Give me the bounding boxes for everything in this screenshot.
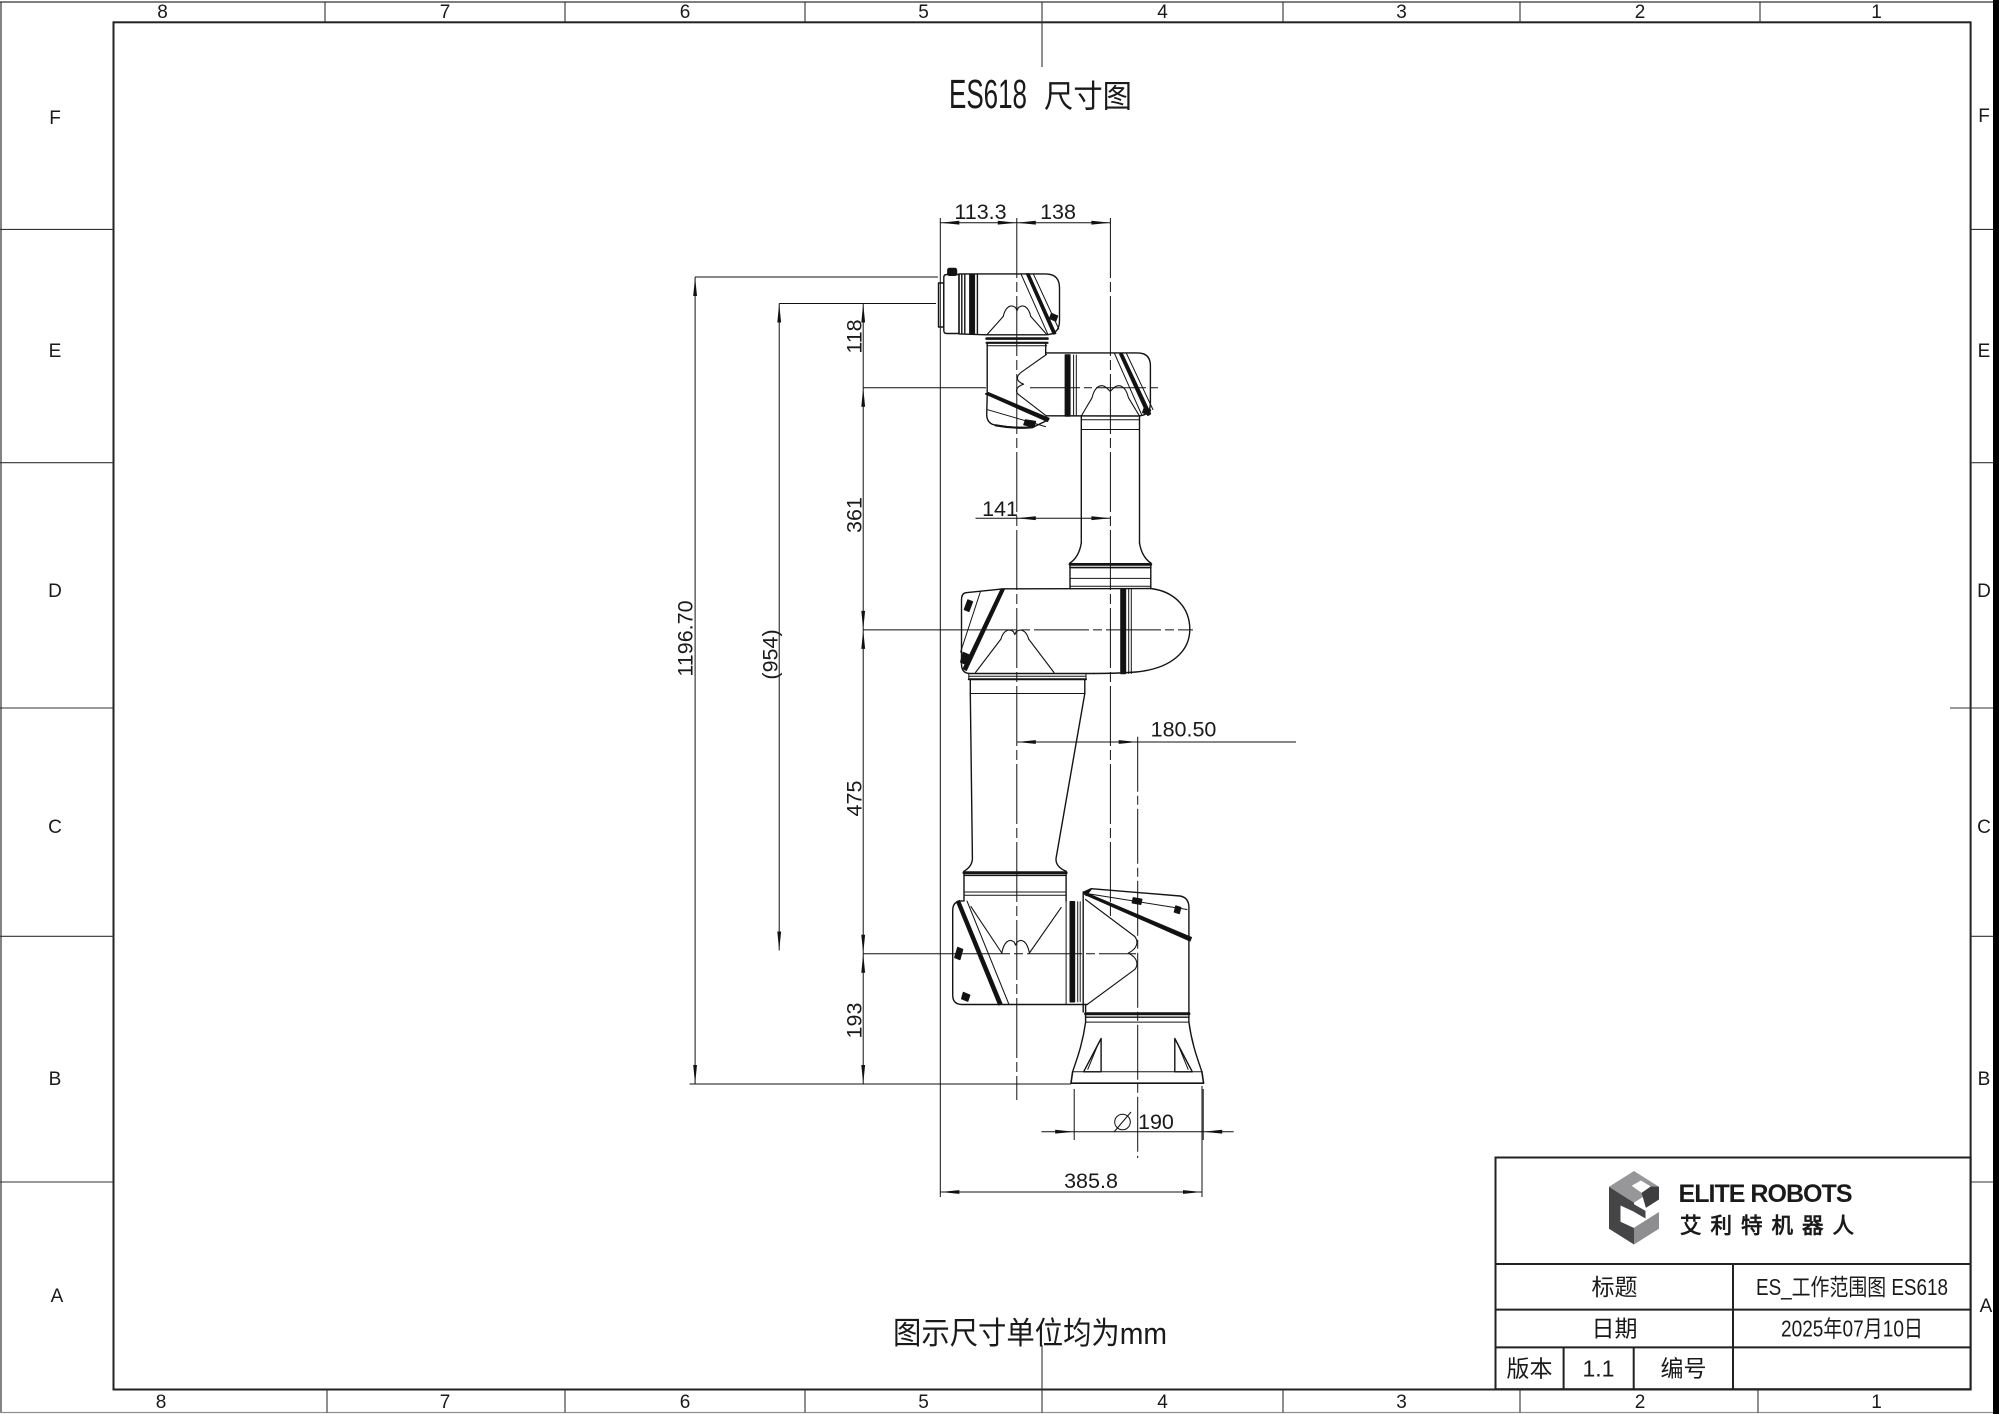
svg-text:F: F <box>49 108 61 129</box>
svg-text:尺寸图: 尺寸图 <box>1044 78 1132 114</box>
svg-text:E: E <box>1978 341 1991 362</box>
svg-text:2025年07月10日: 2025年07月10日 <box>1781 1316 1923 1342</box>
svg-text:2: 2 <box>1635 2 1646 23</box>
svg-text:C: C <box>1977 817 1991 838</box>
svg-text:A: A <box>51 1286 64 1307</box>
svg-text:图示尺寸单位均为mm: 图示尺寸单位均为mm <box>893 1316 1167 1351</box>
svg-text:6: 6 <box>680 2 691 23</box>
svg-text:6: 6 <box>680 1392 691 1413</box>
svg-text:180.50: 180.50 <box>1151 718 1217 742</box>
svg-text:138: 138 <box>1040 200 1076 224</box>
svg-text:B: B <box>1978 1069 1991 1090</box>
svg-text:D: D <box>1977 581 1991 602</box>
svg-text:361: 361 <box>843 497 867 533</box>
svg-text:8: 8 <box>156 1392 167 1413</box>
svg-text:2: 2 <box>1635 1392 1646 1413</box>
svg-text:5: 5 <box>918 1392 929 1413</box>
svg-text:1.1: 1.1 <box>1583 1356 1615 1382</box>
svg-text:编号: 编号 <box>1661 1356 1707 1382</box>
svg-text:385.8: 385.8 <box>1064 1169 1118 1193</box>
svg-text:E: E <box>49 341 62 362</box>
svg-text:113.3: 113.3 <box>954 200 1006 224</box>
svg-text:ES_工作范围图 ES618: ES_工作范围图 ES618 <box>1756 1274 1948 1300</box>
svg-text:118: 118 <box>843 319 867 353</box>
svg-text:190: 190 <box>1138 1110 1174 1134</box>
svg-text:5: 5 <box>918 2 929 23</box>
svg-text:1: 1 <box>1871 2 1882 23</box>
svg-text:7: 7 <box>440 2 451 23</box>
svg-text:(954): (954) <box>759 629 783 679</box>
svg-text:4: 4 <box>1157 2 1168 23</box>
svg-text:D: D <box>48 581 62 602</box>
svg-text:4: 4 <box>1157 1392 1168 1413</box>
svg-text:141: 141 <box>982 497 1018 521</box>
svg-text:8: 8 <box>157 2 168 23</box>
svg-text:ELITE ROBOTS: ELITE ROBOTS <box>1679 1180 1853 1208</box>
svg-text:1: 1 <box>1871 1392 1882 1413</box>
svg-text:标题: 标题 <box>1592 1274 1638 1300</box>
svg-text:B: B <box>49 1069 62 1090</box>
svg-text:ES618: ES618 <box>949 71 1027 117</box>
svg-text:艾利特机器人: 艾利特机器人 <box>1680 1213 1854 1238</box>
svg-text:3: 3 <box>1396 1392 1407 1413</box>
svg-text:C: C <box>48 817 62 838</box>
svg-text:1196.70: 1196.70 <box>674 600 698 676</box>
svg-text:日期: 日期 <box>1592 1316 1638 1342</box>
svg-text:F: F <box>1978 106 1990 127</box>
svg-text:193: 193 <box>843 1003 867 1039</box>
svg-text:版本: 版本 <box>1507 1356 1553 1382</box>
svg-text:A: A <box>1980 1296 1993 1317</box>
svg-text:7: 7 <box>440 1392 451 1413</box>
svg-text:3: 3 <box>1396 2 1407 23</box>
svg-text:475: 475 <box>843 781 867 817</box>
